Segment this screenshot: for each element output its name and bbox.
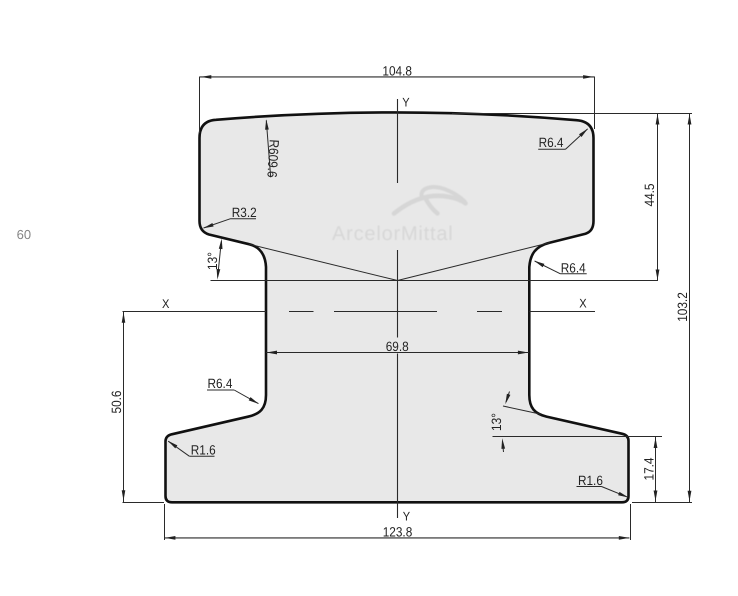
svg-text:R6.4: R6.4 <box>539 135 564 150</box>
svg-text:103.2: 103.2 <box>675 292 690 322</box>
svg-text:60: 60 <box>17 227 31 242</box>
svg-text:R6.4: R6.4 <box>561 260 586 275</box>
svg-text:13°: 13° <box>489 413 504 431</box>
svg-text:R1.6: R1.6 <box>191 442 216 457</box>
svg-text:17.4: 17.4 <box>642 457 657 480</box>
svg-text:Y: Y <box>403 509 411 523</box>
svg-text:ArcelorMittal: ArcelorMittal <box>332 223 454 245</box>
svg-text:13°: 13° <box>205 252 220 270</box>
svg-text:50.6: 50.6 <box>109 391 124 414</box>
svg-text:R1.6: R1.6 <box>578 473 603 488</box>
svg-text:R609.6: R609.6 <box>264 139 281 178</box>
svg-text:X: X <box>579 297 587 311</box>
svg-text:R3.2: R3.2 <box>232 205 257 220</box>
svg-text:Y: Y <box>402 95 410 109</box>
svg-text:X: X <box>162 297 170 311</box>
svg-text:R6.4: R6.4 <box>208 376 233 391</box>
svg-text:44.5: 44.5 <box>642 184 657 207</box>
svg-text:69.8: 69.8 <box>386 339 409 354</box>
svg-text:104.8: 104.8 <box>382 64 412 79</box>
svg-text:123.8: 123.8 <box>383 524 413 539</box>
